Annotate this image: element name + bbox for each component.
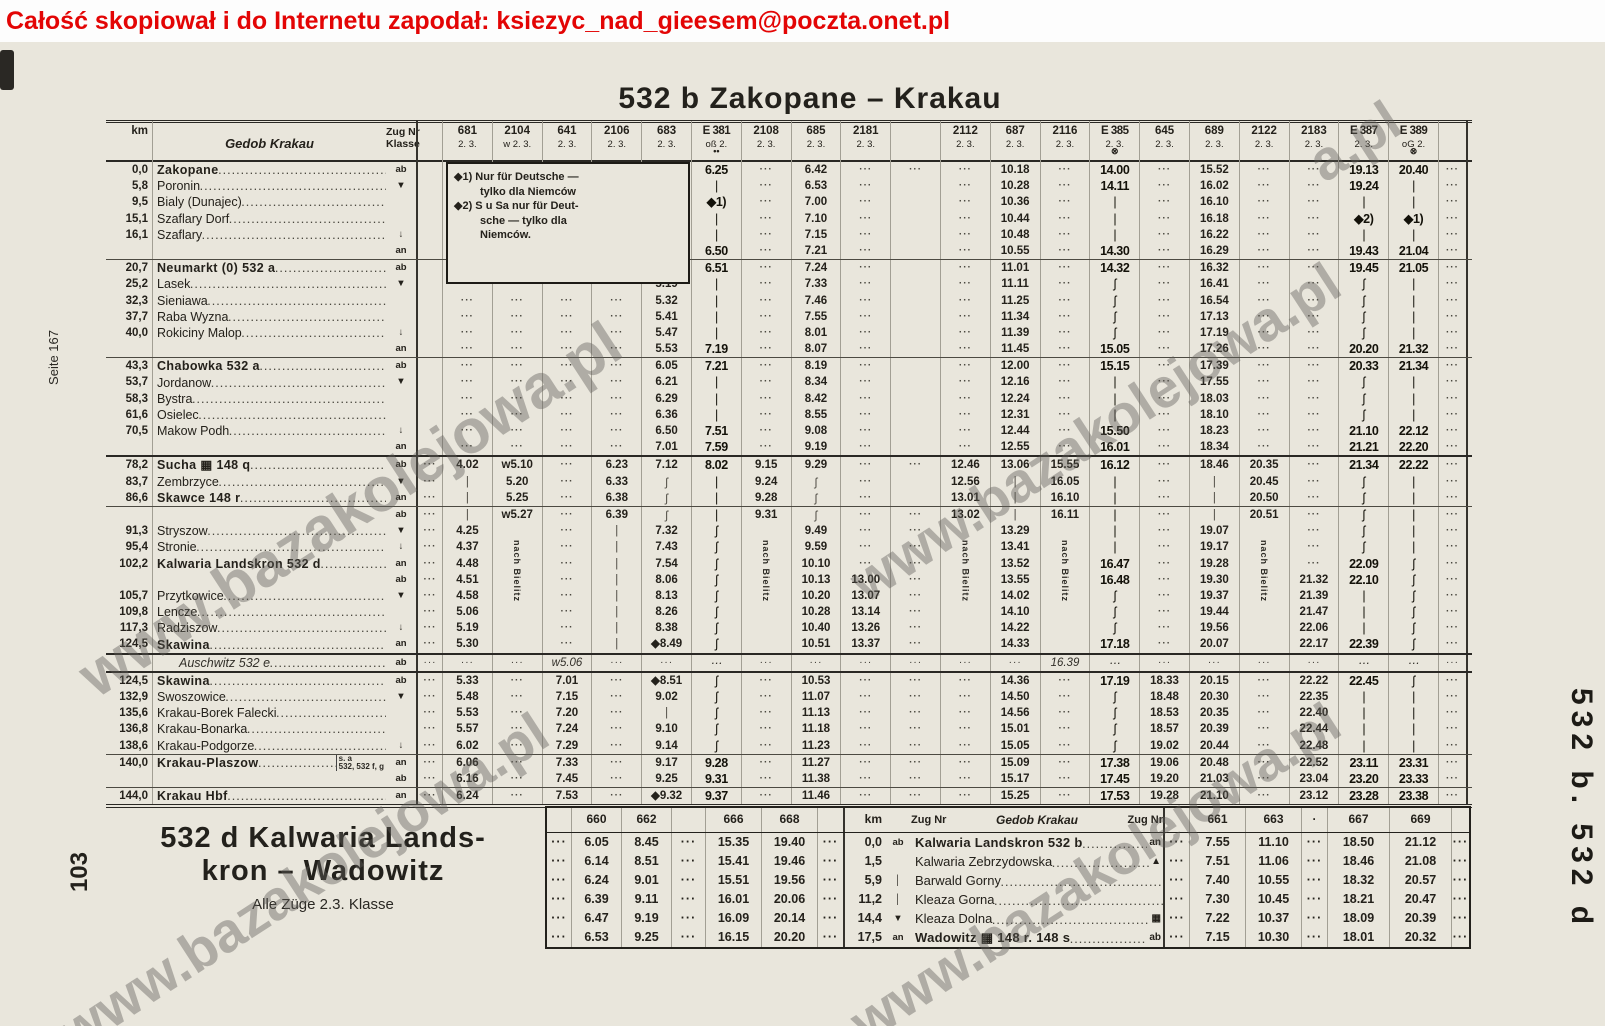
station-name: Skawina bbox=[153, 673, 210, 689]
time-cell: 5.33 bbox=[442, 673, 492, 689]
time-cell: 10.40 bbox=[791, 620, 841, 636]
time-cell: ··· bbox=[840, 523, 890, 539]
time-cell: ··· bbox=[817, 909, 843, 928]
time-cell: 20.45 bbox=[1239, 474, 1289, 490]
time-cell: 7.21 bbox=[791, 243, 841, 259]
dotted-leader bbox=[992, 912, 1149, 926]
stop-marker: an bbox=[386, 636, 416, 652]
time-cell: | bbox=[691, 407, 741, 423]
time-cell: ··· bbox=[416, 507, 442, 523]
time-cell: ··· bbox=[492, 788, 542, 804]
km-cell: 5,9 bbox=[843, 871, 885, 890]
time-cell: ··· bbox=[1438, 162, 1468, 178]
time-cell: 10.13 bbox=[791, 572, 841, 588]
stop-marker bbox=[386, 293, 416, 309]
km-cell: 37,7 bbox=[106, 309, 152, 325]
time-cell: | bbox=[1338, 738, 1388, 754]
train-number-header: 666 bbox=[705, 808, 761, 832]
time-cell: ··· bbox=[940, 358, 990, 374]
class-label: w 2. 3. bbox=[493, 138, 542, 151]
time-cell: ··· bbox=[416, 655, 442, 671]
time-cell: 19.56 bbox=[1189, 620, 1239, 636]
time-cell bbox=[1040, 620, 1090, 636]
km-cell: 83,7 bbox=[106, 474, 152, 490]
time-cell: 12.31 bbox=[990, 407, 1040, 423]
time-cell: ··· bbox=[1438, 523, 1468, 539]
time-cell: ··· bbox=[940, 178, 990, 194]
time-cell: 15.17 bbox=[990, 771, 1040, 787]
time-cell: ··· bbox=[940, 439, 990, 455]
time-cell: ʃ bbox=[1089, 276, 1139, 292]
station-name: Stronie bbox=[153, 539, 197, 555]
train-column-header: 21162. 3. bbox=[1040, 121, 1090, 162]
time-cell: ··· bbox=[840, 539, 890, 555]
time-cell: 16.11 bbox=[1040, 507, 1090, 523]
bottom-header-row: 660662666668kmZug NrGedob KrakauZug Nr66… bbox=[547, 808, 1469, 833]
km-cell: 17,5 bbox=[843, 928, 885, 947]
time-cell: | bbox=[1089, 523, 1139, 539]
time-cell: ʃ bbox=[1338, 407, 1388, 423]
time-cell: ··· bbox=[442, 423, 492, 439]
time-cell: ··· bbox=[1438, 457, 1468, 473]
time-cell: | bbox=[1089, 227, 1139, 243]
time-cell: 7.40 bbox=[1189, 871, 1245, 890]
time-cell: 13.26 bbox=[840, 620, 890, 636]
time-cell: | bbox=[691, 276, 741, 292]
subtable-title-532d: 532 d Kalwaria Lands- kron – Wadowitz Al… bbox=[88, 822, 558, 913]
time-cell: 19.43 bbox=[1338, 243, 1388, 259]
dotted-leader bbox=[270, 656, 386, 670]
time-cell: | bbox=[1338, 705, 1388, 721]
time-cell: ··· bbox=[741, 309, 791, 325]
time-cell: ··· bbox=[1163, 890, 1189, 909]
time-cell: ··· bbox=[591, 655, 641, 671]
class-label: 2. 3. bbox=[792, 138, 841, 151]
time-cell: ··· bbox=[840, 738, 890, 754]
uploader-banner: Całość skopiował i do Internetu zapodał:… bbox=[6, 7, 950, 36]
time-cell: ʃ bbox=[691, 721, 741, 737]
time-cell: 11.34 bbox=[990, 309, 1040, 325]
footnote-line: Niemców. bbox=[454, 228, 684, 243]
time-cell: ··· bbox=[492, 721, 542, 737]
class-label: 2. 3. bbox=[991, 138, 1040, 151]
time-cell: | bbox=[1388, 374, 1438, 390]
zugnr-label: Zug Nr bbox=[1120, 809, 1163, 831]
class-label: 2. 3. bbox=[1041, 138, 1090, 151]
time-cell: ··· bbox=[1289, 391, 1339, 407]
time-cell: 10.45 bbox=[1245, 890, 1301, 909]
time-cell: ʃ bbox=[1388, 636, 1438, 652]
km-cell: 58,3 bbox=[106, 391, 152, 407]
timetable-row: Auschwitz 532 eab·········w5.06·········… bbox=[106, 655, 1472, 673]
time-cell: | bbox=[990, 474, 1040, 490]
time-cell: ··· bbox=[1139, 439, 1189, 455]
time-cell: ··· bbox=[940, 374, 990, 390]
timetable-row: 20,7Neumarkt (0) 532 aab5.106.51···7.24·… bbox=[106, 260, 1472, 276]
station-name: Sieniawa bbox=[153, 293, 208, 309]
time-cell: ··· bbox=[1289, 507, 1339, 523]
time-cell: 23.28 bbox=[1338, 788, 1388, 804]
time-cell bbox=[492, 636, 542, 652]
time-cell: ··· bbox=[890, 755, 940, 771]
time-cell: ··· bbox=[741, 407, 791, 423]
time-cell: ··· bbox=[1289, 309, 1339, 325]
time-cell: 21.08 bbox=[1389, 852, 1451, 871]
time-cell: ··· bbox=[1139, 374, 1189, 390]
stop-marker: an bbox=[386, 556, 416, 572]
km-cell: 5,8 bbox=[106, 178, 152, 194]
time-cell: 14.02 bbox=[990, 588, 1040, 604]
station-cell: Przytkowice bbox=[152, 588, 386, 604]
train-column-header: E 3872. 3. bbox=[1338, 121, 1388, 162]
time-cell: | bbox=[1388, 391, 1438, 407]
station-name: Kalwaria Landskron 532 d bbox=[153, 556, 321, 572]
train-column-header: 6812. 3. bbox=[442, 121, 492, 162]
stop-marker bbox=[386, 407, 416, 423]
time-cell: ··· bbox=[890, 604, 940, 620]
time-cell: ··· bbox=[1139, 407, 1189, 423]
time-cell: ··· bbox=[940, 211, 990, 227]
time-cell: ··· bbox=[1438, 260, 1468, 276]
time-cell: ʃ bbox=[791, 507, 841, 523]
time-cell: 6.21 bbox=[641, 374, 691, 390]
time-cell: | bbox=[1189, 474, 1239, 490]
time-cell: 7.24 bbox=[791, 260, 841, 276]
time-cell: | bbox=[1388, 309, 1438, 325]
time-cell: ··· bbox=[591, 738, 641, 754]
stop-marker: ↓ bbox=[386, 325, 416, 341]
time-cell: ··· bbox=[416, 673, 442, 689]
time-cell: 9.02 bbox=[641, 689, 691, 705]
time-cell: ··· bbox=[1289, 162, 1339, 178]
time-cell: 17.53 bbox=[1089, 788, 1139, 804]
time-cell: 22.09 bbox=[1338, 556, 1388, 572]
time-cell: ··· bbox=[1139, 162, 1189, 178]
stop-marker: │ bbox=[885, 890, 911, 909]
dotted-leader bbox=[210, 674, 386, 688]
time-cell: 23.11 bbox=[1338, 755, 1388, 771]
train-number-header: 660 bbox=[571, 808, 621, 832]
time-cell: ··· bbox=[416, 556, 442, 572]
station-cell: Poronin bbox=[152, 178, 386, 194]
station-cell: Makow Podh bbox=[152, 423, 386, 439]
time-cell: ··· bbox=[840, 655, 890, 671]
time-cell: 8.01 bbox=[791, 325, 841, 341]
time-cell: 7.15 bbox=[542, 689, 592, 705]
timetable-row: 132,9Swoszowice▼···5.48···7.15···9.02ʃ··… bbox=[106, 689, 1472, 705]
time-cell: ··· bbox=[940, 260, 990, 276]
timetable-532d: 660662666668kmZug NrGedob KrakauZug Nr66… bbox=[545, 806, 1471, 949]
time-cell: 19.45 bbox=[1338, 260, 1388, 276]
stop-marker bbox=[386, 211, 416, 227]
time-cell: ··· bbox=[542, 556, 592, 572]
time-cell: ··· bbox=[1301, 909, 1327, 928]
class-label: 2. 3. bbox=[1339, 138, 1388, 151]
train-column-header: E 389oG 2.⊗ bbox=[1388, 121, 1438, 162]
time-cell: 21.34 bbox=[1338, 457, 1388, 473]
stop-marker: ▼ bbox=[386, 689, 416, 705]
timetable-row: 140,0Krakau-Plaszows. a532, 532 f, gan··… bbox=[106, 755, 1472, 771]
stop-marker: ↓ bbox=[386, 227, 416, 243]
time-cell: 10.20 bbox=[791, 588, 841, 604]
stop-marker bbox=[386, 391, 416, 407]
train-number: 2112 bbox=[941, 125, 990, 138]
time-cell: ··· bbox=[492, 309, 542, 325]
time-cell: 4.37 bbox=[442, 539, 492, 555]
km-cell bbox=[106, 572, 152, 588]
station-cell: Bystra bbox=[152, 391, 386, 407]
time-cell: ··· bbox=[741, 755, 791, 771]
time-cell: ʃ bbox=[1089, 721, 1139, 737]
time-cell: 20.35 bbox=[1189, 705, 1239, 721]
time-cell: ··· bbox=[1239, 309, 1289, 325]
time-cell: ··· bbox=[1239, 211, 1289, 227]
train-number: 683 bbox=[642, 125, 691, 138]
dotted-leader bbox=[1052, 855, 1149, 869]
km-cell bbox=[106, 439, 152, 455]
time-cell: | bbox=[1388, 721, 1438, 737]
station-suffix: ▲ bbox=[1149, 852, 1163, 871]
time-cell: ··· bbox=[1239, 755, 1289, 771]
time-cell bbox=[890, 293, 940, 309]
train-number-header: 668 bbox=[761, 808, 817, 832]
time-cell: ʃ bbox=[1338, 276, 1388, 292]
time-cell: nach Bielitz bbox=[1239, 523, 1289, 539]
station-cell bbox=[152, 243, 386, 259]
stop-marker: ↓ bbox=[386, 738, 416, 754]
train-number: 689 bbox=[1190, 125, 1239, 138]
time-cell: ··· bbox=[1239, 243, 1289, 259]
time-cell: ··· bbox=[591, 771, 641, 787]
time-cell: ··· bbox=[542, 407, 592, 423]
time-cell: 22.52 bbox=[1289, 755, 1339, 771]
timetable-row: 70,5Makow Podh↓············6.507.51···9.… bbox=[106, 423, 1472, 439]
time-cell: ··· bbox=[890, 705, 940, 721]
time-cell: 21.12 bbox=[1389, 833, 1451, 852]
time-cell: 14.32 bbox=[1089, 260, 1139, 276]
time-cell: ··· bbox=[1438, 556, 1468, 572]
time-cell bbox=[1239, 620, 1289, 636]
time-cell: | bbox=[691, 507, 741, 523]
train-number: 2122 bbox=[1240, 125, 1289, 138]
time-cell: 9.15 bbox=[741, 457, 791, 473]
time-cell: ··· bbox=[442, 655, 492, 671]
time-cell bbox=[416, 341, 442, 357]
time-cell: 10.51 bbox=[791, 636, 841, 652]
time-cell: ··· bbox=[1139, 391, 1189, 407]
time-cell: ··· bbox=[542, 604, 592, 620]
time-cell: ··· bbox=[1139, 341, 1189, 357]
station-cell: Radziszow bbox=[152, 620, 386, 636]
time-cell: ··· bbox=[1239, 162, 1289, 178]
time-cell: ··· bbox=[741, 293, 791, 309]
time-cell bbox=[416, 243, 442, 259]
time-cell: ··· bbox=[1239, 178, 1289, 194]
train-column-header: 21812. 3. bbox=[840, 121, 890, 162]
time-cell: ··· bbox=[442, 309, 492, 325]
time-cell: ··· bbox=[741, 673, 791, 689]
time-cell: ʃ bbox=[691, 689, 741, 705]
time-cell: ··· bbox=[591, 705, 641, 721]
time-cell: ʃ bbox=[691, 604, 741, 620]
timetable-row: 40,0Rokiciny Malop↓············5.47|···8… bbox=[106, 325, 1472, 341]
time-cell: | bbox=[1189, 490, 1239, 506]
timetable-row: ···6.249.01···15.5119.56···5,9│Barwald G… bbox=[547, 871, 1469, 890]
station-cell: Chabowka 532 a bbox=[152, 358, 386, 374]
time-cell: 17.13 bbox=[1189, 309, 1239, 325]
time-cell: 5.41 bbox=[641, 309, 691, 325]
main-timetable-532b: ◆1) Nur für Deutsche —tylko dla Niemców◆… bbox=[106, 120, 1472, 808]
time-cell: 11.23 bbox=[791, 738, 841, 754]
station-name: Radziszow bbox=[153, 620, 217, 636]
station-cell: Raba Wyzna bbox=[152, 309, 386, 325]
km-cell: 40,0 bbox=[106, 325, 152, 341]
time-cell: ··· bbox=[542, 358, 592, 374]
time-cell: ʃ bbox=[1338, 293, 1388, 309]
time-cell: w5.27 bbox=[492, 507, 542, 523]
time-cell: 6.16 bbox=[442, 771, 492, 787]
time-cell: ··· bbox=[442, 293, 492, 309]
train-number: E 387 bbox=[1339, 125, 1388, 138]
station-cell: Kalwaria Landskron 532 d bbox=[152, 556, 386, 572]
time-cell: w5.06 bbox=[542, 655, 592, 671]
time-cell: ··· bbox=[1239, 194, 1289, 210]
time-cell: 5.47 bbox=[641, 325, 691, 341]
station-suffix: ab bbox=[1147, 928, 1163, 947]
time-cell: 9.24 bbox=[741, 474, 791, 490]
time-cell: ʃ bbox=[1089, 293, 1139, 309]
time-cell: ··· bbox=[1239, 325, 1289, 341]
time-cell: 12.56 bbox=[940, 474, 990, 490]
time-cell: ··· bbox=[1139, 556, 1189, 572]
time-cell: ··· bbox=[1040, 309, 1090, 325]
station-cell: Szaflary bbox=[152, 227, 386, 243]
km-cell bbox=[106, 771, 152, 787]
time-cell: ··· bbox=[890, 636, 940, 652]
time-cell: 7.33 bbox=[542, 755, 592, 771]
km-cell bbox=[106, 341, 152, 357]
station-name: Wadowitz ▦ 148 r. 148 s bbox=[911, 928, 1070, 947]
station-cell: Sucha ▦ 148 q bbox=[152, 457, 386, 473]
dotted-leader bbox=[258, 756, 335, 770]
time-cell: ··· bbox=[1289, 407, 1339, 423]
time-cell bbox=[940, 636, 990, 652]
time-cell: ··· bbox=[591, 673, 641, 689]
time-cell: 16.09 bbox=[705, 909, 761, 928]
time-cell: 6.47 bbox=[571, 909, 621, 928]
time-cell: 4.25 bbox=[442, 523, 492, 539]
time-cell: ··· bbox=[741, 705, 791, 721]
time-cell: ʃ bbox=[1089, 604, 1139, 620]
time-cell: | bbox=[591, 620, 641, 636]
time-cell: ··· bbox=[591, 689, 641, 705]
timetable-row: 25,2Lasek▼5.19|···7.33······11.11···ʃ···… bbox=[106, 276, 1472, 292]
train-number-header: 661 bbox=[1189, 808, 1245, 832]
time-cell: ◆9.32 bbox=[641, 788, 691, 804]
dotted-leader bbox=[995, 893, 1164, 907]
time-cell: 17.38 bbox=[1089, 755, 1139, 771]
stop-marker: ab bbox=[386, 673, 416, 689]
time-cell: ··· bbox=[1040, 260, 1090, 276]
time-cell: ··· bbox=[1239, 655, 1289, 671]
time-cell: 8.45 bbox=[621, 833, 671, 852]
time-cell: 8.13 bbox=[641, 588, 691, 604]
time-cell: ··· bbox=[1438, 507, 1468, 523]
time-cell: 16.12 bbox=[1089, 457, 1139, 473]
time-cell bbox=[416, 276, 442, 292]
time-cell: 18.03 bbox=[1189, 391, 1239, 407]
time-cell: ··· bbox=[741, 721, 791, 737]
station-cell: Kalwaria Landskron 532 ban bbox=[911, 833, 1163, 852]
stop-marker bbox=[885, 852, 911, 871]
time-cell: ··· bbox=[1040, 325, 1090, 341]
time-cell bbox=[416, 325, 442, 341]
time-cell: 20.30 bbox=[1189, 689, 1239, 705]
time-cell: ··· bbox=[1239, 374, 1289, 390]
footnote-line: sche — tylko dla bbox=[454, 214, 684, 229]
time-cell: ··· bbox=[1139, 293, 1189, 309]
time-cell: ··· bbox=[1040, 374, 1090, 390]
time-cell: 23.33 bbox=[1388, 771, 1438, 787]
train-number: 2108 bbox=[742, 125, 791, 138]
time-cell: ··· bbox=[591, 293, 641, 309]
time-cell: 5.48 bbox=[442, 689, 492, 705]
time-cell: ··· bbox=[840, 556, 890, 572]
time-cell: 9.01 bbox=[621, 871, 671, 890]
time-cell: ʃ bbox=[691, 556, 741, 572]
km-header: km bbox=[106, 121, 152, 162]
time-cell: ··· bbox=[741, 341, 791, 357]
stop-marker: an bbox=[386, 341, 416, 357]
time-cell: ··· bbox=[940, 194, 990, 210]
time-cell: ··· bbox=[1438, 391, 1468, 407]
time-cell: ··· bbox=[1438, 490, 1468, 506]
km-cell: 43,3 bbox=[106, 358, 152, 374]
time-cell bbox=[890, 423, 940, 439]
time-cell: ··· bbox=[1289, 423, 1339, 439]
time-cell: 14.33 bbox=[990, 636, 1040, 652]
dotted-leader bbox=[190, 277, 386, 291]
time-cell: ··· bbox=[1438, 689, 1468, 705]
time-cell: 22.12 bbox=[1388, 423, 1438, 439]
dotted-leader bbox=[1083, 836, 1148, 850]
time-cell: 5.25 bbox=[492, 490, 542, 506]
train-number: E 389 bbox=[1389, 125, 1438, 138]
time-cell: ʃ bbox=[1388, 588, 1438, 604]
km-cell: 135,6 bbox=[106, 705, 152, 721]
time-cell: ··· bbox=[442, 407, 492, 423]
time-cell: ··· bbox=[542, 423, 592, 439]
time-cell: ··· bbox=[442, 341, 492, 357]
scanned-timetable-page: Całość skopiował i do Internetu zapodał:… bbox=[0, 0, 1605, 1026]
time-cell: ··· bbox=[1139, 211, 1189, 227]
time-cell: ··· bbox=[1289, 457, 1339, 473]
time-cell: ··· bbox=[591, 407, 641, 423]
stop-marker: ab bbox=[386, 457, 416, 473]
time-cell: 11.39 bbox=[990, 325, 1040, 341]
time-cell: ··· bbox=[890, 721, 940, 737]
time-cell: ··· bbox=[591, 374, 641, 390]
time-cell: 7.30 bbox=[1189, 890, 1245, 909]
time-cell: 9.08 bbox=[791, 423, 841, 439]
time-cell: ··· bbox=[1438, 620, 1468, 636]
time-cell: 6.14 bbox=[571, 852, 621, 871]
time-cell: 20.33 bbox=[1338, 358, 1388, 374]
time-cell: 15.55 bbox=[1040, 457, 1090, 473]
time-cell: 6.02 bbox=[442, 738, 492, 754]
time-cell: 6.42 bbox=[791, 162, 841, 178]
timetable-row: 136,8Krakau-Bonarka···5.57···7.24···9.10… bbox=[106, 721, 1472, 737]
